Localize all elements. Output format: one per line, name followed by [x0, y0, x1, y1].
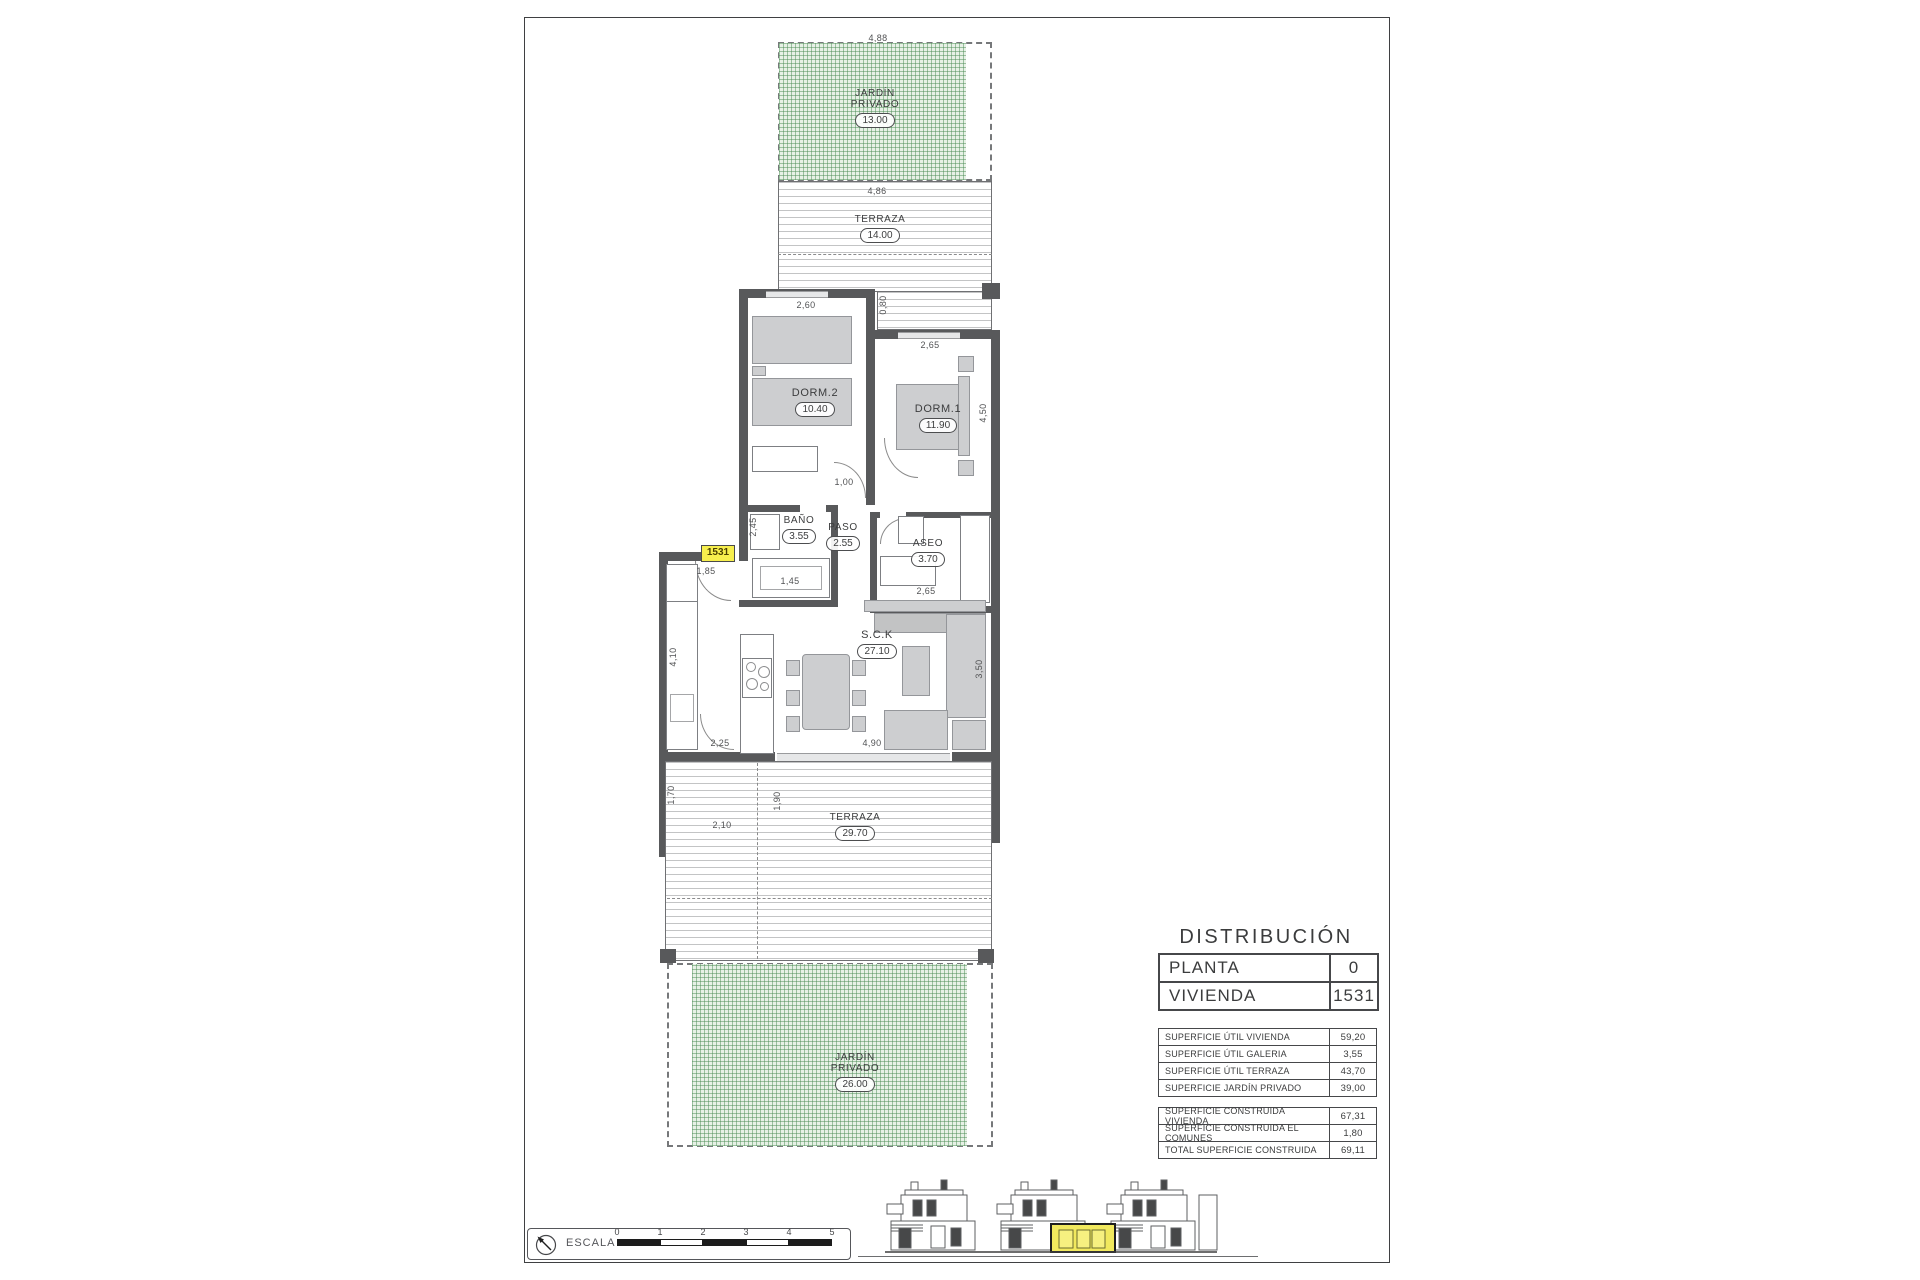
room-area: 27.10	[857, 644, 896, 659]
terrace-bottom-deck	[665, 761, 992, 961]
table-row: SUPERFICIE CONSTRUIDA EL COMUNES 1,80	[1159, 1124, 1376, 1141]
terrace-dashed-line	[778, 254, 992, 255]
table-row: SUPERFICIE ÚTIL GALERIA 3,55	[1159, 1045, 1376, 1062]
scale-segment	[660, 1239, 703, 1246]
wall-segment	[870, 512, 877, 612]
furniture-nightstand	[958, 460, 974, 476]
drawing-sheet: JARDÍN PRIVADO 13.00 4,88 TERRAZA 14.00 …	[0, 0, 1920, 1280]
wall-segment	[982, 283, 1000, 299]
useful-areas-table: SUPERFICIE ÚTIL VIVIENDA 59,20 SUPERFICI…	[1158, 1028, 1377, 1097]
table-cell-label: SUPERFICIE ÚTIL VIVIENDA	[1159, 1029, 1329, 1045]
room-label-terraza-bottom: TERRAZA 29.70	[820, 812, 890, 841]
tv-unit	[864, 600, 986, 612]
table-cell-label: PLANTA	[1160, 955, 1329, 981]
table-cell-value: 39,00	[1329, 1080, 1376, 1096]
dim-label: 4,86	[859, 186, 895, 196]
table-cell-value: 0	[1329, 955, 1377, 981]
scale-segment	[703, 1239, 746, 1246]
room-area: 3.55	[782, 529, 815, 544]
chair	[852, 660, 866, 676]
dim-label: 1,90	[772, 786, 782, 816]
scale-tick: 0	[611, 1227, 623, 1237]
dim-label: 2,60	[788, 300, 824, 310]
table-row: PLANTA 0	[1160, 955, 1377, 981]
table-cell-label: VIVIENDA	[1160, 983, 1329, 1009]
building-elevation-drawing	[883, 1178, 1219, 1260]
terrace-dashed-line	[757, 763, 758, 959]
door-gap	[800, 505, 826, 512]
unit-highlight	[1051, 1224, 1115, 1252]
table-cell-value: 59,20	[1329, 1029, 1376, 1045]
room-area: 2.55	[826, 536, 859, 551]
dining-table	[802, 654, 850, 730]
furniture-nightstand	[752, 366, 766, 376]
north-compass-icon	[534, 1232, 558, 1256]
room-label-jardin-bottom: JARDÍN PRIVADO 26.00	[800, 1052, 910, 1092]
room-name: S.C.K	[845, 630, 909, 641]
table-row: TOTAL SUPERFICIE CONSTRUIDA 69,11	[1159, 1141, 1376, 1158]
wall-segment	[739, 289, 748, 561]
kitchen-sink	[670, 694, 694, 722]
table-cell-value: 67,31	[1329, 1108, 1376, 1124]
room-label-jardin-top: JARDÍN PRIVADO 13.00	[810, 88, 940, 128]
table-cell-value: 43,70	[1329, 1063, 1376, 1079]
table-cell-value: 69,11	[1329, 1142, 1376, 1158]
table-cell-label: SUPERFICIE CONSTRUIDA VIVIENDA	[1159, 1108, 1329, 1124]
panel-title: DISTRIBUCIÓN	[1156, 926, 1376, 949]
dim-label: 2,65	[912, 340, 948, 350]
table-cell-value: 1,80	[1329, 1125, 1376, 1141]
dim-label: 1,70	[666, 780, 676, 810]
closet	[960, 515, 990, 603]
dim-label: 4,10	[668, 642, 678, 672]
table-cell-label: SUPERFICIE JARDÍN PRIVADO	[1159, 1080, 1329, 1096]
dim-label: 2,10	[704, 820, 740, 830]
scale-label: ESCALA :	[566, 1237, 623, 1249]
room-area: 29.70	[835, 826, 874, 841]
room-label-terraza-top: TERRAZA 14.00	[815, 214, 945, 243]
table-cell-label: SUPERFICIE ÚTIL TERRAZA	[1159, 1063, 1329, 1079]
scale-segment	[746, 1239, 789, 1246]
terrace-top-step	[877, 292, 992, 330]
dim-label: 4,90	[854, 738, 890, 748]
scale-tick: 5	[826, 1227, 838, 1237]
room-area: 3.70	[911, 552, 944, 567]
chair	[786, 660, 800, 676]
room-name: PASO	[819, 522, 867, 533]
unit-table: PLANTA 0 VIVIENDA 1531	[1158, 953, 1379, 1011]
ground-line	[858, 1256, 1258, 1257]
table-row: SUPERFICIE ÚTIL TERRAZA 43,70	[1159, 1062, 1376, 1079]
hob-burner-icon	[760, 682, 769, 691]
dim-label: 2,45	[748, 512, 758, 542]
room-name: ASEO	[899, 538, 957, 549]
room-name: TERRAZA	[820, 812, 890, 823]
furniture-cabinet	[752, 446, 818, 472]
scale-tick: 4	[783, 1227, 795, 1237]
hob-burner-icon	[746, 662, 756, 672]
chair	[852, 690, 866, 706]
window	[766, 291, 828, 298]
room-area: 13.00	[855, 113, 894, 128]
dim-label: 2,65	[908, 586, 944, 596]
table-row: SUPERFICIE JARDÍN PRIVADO 39,00	[1159, 1079, 1376, 1096]
built-areas-table: SUPERFICIE CONSTRUIDA VIVIENDA 67,31 SUP…	[1158, 1107, 1377, 1159]
table-cell-label: SUPERFICIE CONSTRUIDA EL COMUNES	[1159, 1125, 1329, 1141]
hob-burner-icon	[746, 678, 758, 690]
room-label-paso: PASO 2.55	[819, 522, 867, 551]
window	[898, 332, 960, 339]
dim-label: 1,45	[772, 576, 808, 586]
scale-segment	[617, 1239, 660, 1246]
hob-burner-icon	[758, 666, 770, 678]
room-name: JARDÍN PRIVADO	[840, 88, 910, 110]
room-area: 11.90	[919, 418, 957, 433]
armchair	[952, 720, 986, 750]
room-area: 26.00	[835, 1077, 874, 1092]
wall-segment	[739, 600, 838, 607]
dim-label: 4,88	[860, 33, 896, 43]
wall-segment	[952, 752, 1000, 761]
wall-segment	[978, 949, 994, 963]
dim-label: 3,50	[974, 654, 984, 684]
table-cell-value: 1531	[1329, 983, 1377, 1009]
table-row: VIVIENDA 1531	[1160, 981, 1377, 1009]
table-row: SUPERFICIE ÚTIL VIVIENDA 59,20	[1159, 1029, 1376, 1045]
table-cell-value: 3,55	[1329, 1046, 1376, 1062]
chair	[852, 716, 866, 732]
table-cell-label: TOTAL SUPERFICIE CONSTRUIDA	[1159, 1142, 1329, 1158]
scale-tick: 1	[654, 1227, 666, 1237]
scale-segment	[789, 1239, 832, 1246]
room-name: TERRAZA	[815, 214, 945, 225]
table-row: SUPERFICIE CONSTRUIDA VIVIENDA 67,31	[1159, 1108, 1376, 1124]
dim-label: 4,50	[978, 398, 988, 428]
furniture-nightstand	[958, 356, 974, 372]
dim-label: 2,25	[702, 738, 738, 748]
unit-badge: 1531	[701, 545, 735, 562]
scale-tick: 3	[740, 1227, 752, 1237]
room-area: 14.00	[860, 228, 899, 243]
dim-label: 1,85	[688, 566, 724, 576]
room-area: 10.40	[795, 402, 834, 417]
sofa	[884, 710, 948, 750]
room-label-aseo: ASEO 3.70	[899, 538, 957, 567]
room-label-dorm2: DORM.2 10.40	[755, 388, 875, 417]
dim-label: 1,00	[826, 477, 862, 487]
dim-label: 0,80	[878, 290, 888, 320]
furniture-bed	[752, 316, 852, 364]
chair	[786, 716, 800, 732]
room-name: DORM.2	[755, 388, 875, 399]
room-name: JARDÍN PRIVADO	[820, 1052, 890, 1074]
terrace-dashed-line	[667, 898, 992, 899]
room-label-sck: S.C.K 27.10	[845, 630, 909, 659]
wall-segment	[660, 949, 676, 963]
scale-tick: 2	[697, 1227, 709, 1237]
table-cell-label: SUPERFICIE ÚTIL GALERIA	[1159, 1046, 1329, 1062]
chair	[786, 690, 800, 706]
